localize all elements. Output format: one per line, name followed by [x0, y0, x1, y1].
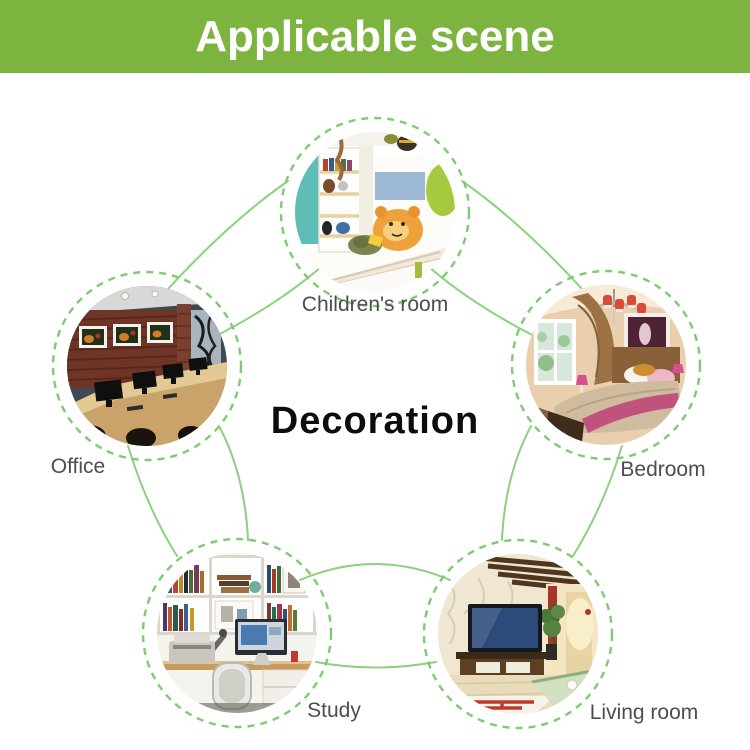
- living-room-photo: [438, 554, 598, 714]
- study-photo: [157, 553, 317, 713]
- children-room-photo: [295, 132, 455, 292]
- label-children-room: Children's room: [275, 293, 475, 317]
- label-office: Office: [18, 455, 138, 479]
- label-living-room: Living room: [574, 701, 714, 725]
- label-study: Study: [282, 699, 386, 723]
- applicable-scene-infographic: Applicable scene: [0, 0, 750, 750]
- label-bedroom: Bedroom: [598, 458, 728, 482]
- center-title: Decoration: [0, 400, 750, 443]
